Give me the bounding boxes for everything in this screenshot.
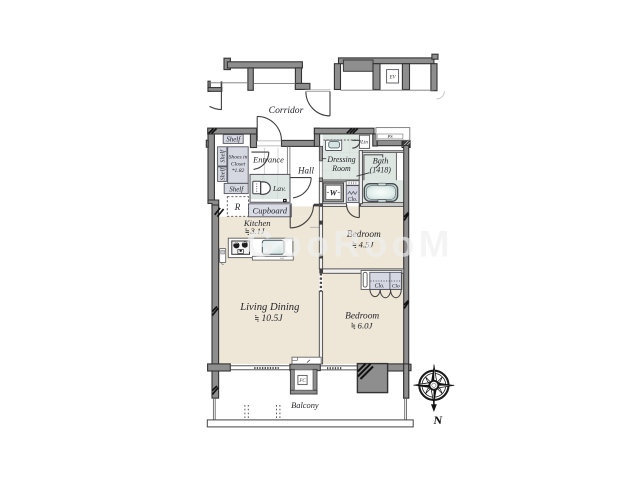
svg-text:PS: PS bbox=[386, 134, 393, 139]
svg-text:Room: Room bbox=[331, 164, 351, 173]
svg-text:Clo.: Clo. bbox=[348, 197, 358, 203]
svg-text:GooRooM: GooRooM bbox=[246, 224, 454, 265]
svg-text:Living Dining: Living Dining bbox=[239, 302, 299, 313]
svg-text:FC: FC bbox=[298, 379, 306, 384]
svg-text:Clo.: Clo. bbox=[375, 284, 385, 290]
svg-text:6.0J: 6.0J bbox=[358, 321, 374, 331]
svg-text:Lav.: Lav. bbox=[272, 184, 286, 193]
svg-text:Shelf: Shelf bbox=[226, 136, 241, 144]
svg-text:Balcony: Balcony bbox=[291, 401, 319, 410]
svg-text:10.5J: 10.5J bbox=[261, 313, 283, 324]
svg-text:Lin: Lin bbox=[360, 141, 368, 146]
svg-text:Shelf: Shelf bbox=[219, 149, 226, 163]
svg-text:Clo: Clo bbox=[392, 284, 400, 290]
svg-text:Shelf: Shelf bbox=[229, 186, 244, 194]
svg-text:W: W bbox=[330, 188, 338, 197]
svg-text:EV: EV bbox=[389, 75, 397, 80]
svg-text:Hall: Hall bbox=[297, 165, 315, 175]
svg-text:(1418): (1418) bbox=[370, 166, 392, 175]
svg-text:Dressing: Dressing bbox=[326, 155, 355, 164]
svg-text:Bath: Bath bbox=[373, 156, 389, 165]
svg-text:R: R bbox=[234, 202, 241, 212]
svg-text:Shoes in: Shoes in bbox=[229, 155, 248, 161]
svg-text:Shelf: Shelf bbox=[219, 167, 226, 181]
svg-text:Entrance: Entrance bbox=[252, 156, 284, 165]
svg-text:Corridor: Corridor bbox=[269, 105, 304, 116]
svg-text:*1.82: *1.82 bbox=[232, 168, 245, 174]
svg-text:Cupboard: Cupboard bbox=[253, 206, 288, 216]
svg-text:Closet: Closet bbox=[231, 161, 246, 167]
